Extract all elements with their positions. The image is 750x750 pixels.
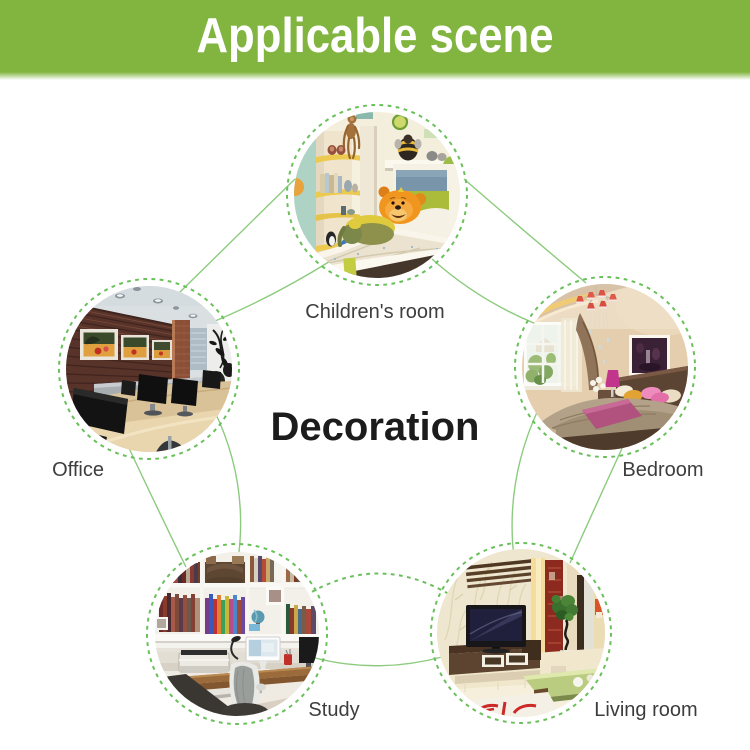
svg-text:Bedroom: Bedroom xyxy=(622,459,703,481)
svg-text:Applicable scene: Applicable scene xyxy=(197,9,554,63)
svg-text:Decoration: Decoration xyxy=(271,405,480,449)
svg-text:Study: Study xyxy=(308,699,359,721)
svg-text:Living room: Living room xyxy=(594,699,697,721)
svg-text:Office: Office xyxy=(52,459,104,481)
svg-text:Children's room: Children's room xyxy=(305,301,444,323)
